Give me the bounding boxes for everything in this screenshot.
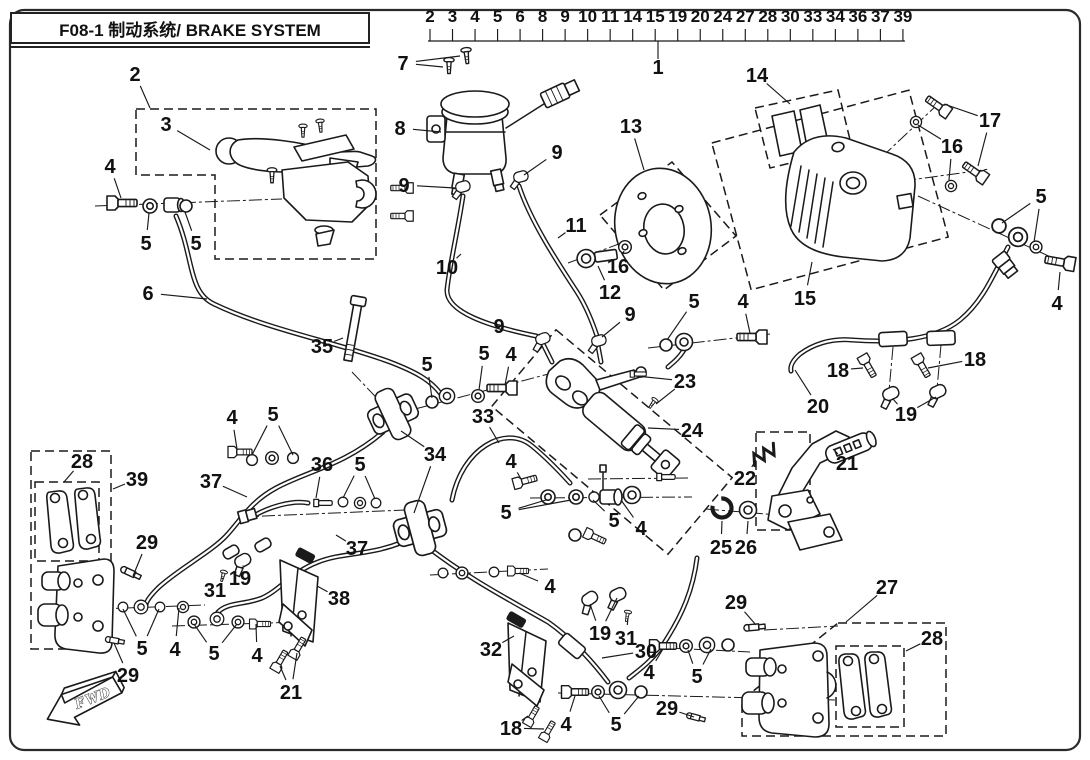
callout-5: 5 <box>354 454 365 476</box>
callout-33: 33 <box>472 406 494 428</box>
callout-23: 23 <box>674 371 696 393</box>
pivot-washer <box>740 502 757 519</box>
index-number: 2 <box>425 7 434 26</box>
callout-19: 19 <box>589 623 611 645</box>
callout-28: 28 <box>921 628 943 650</box>
brake-disc-assembly <box>576 161 720 292</box>
callout-leader <box>590 604 596 621</box>
hose-brackets <box>218 508 706 743</box>
callout-5: 5 <box>140 233 151 255</box>
callout-4: 4 <box>104 156 116 178</box>
callout-leader <box>223 486 247 497</box>
callout-31: 31 <box>204 580 226 602</box>
callout-leader <box>401 431 424 447</box>
callout-leader <box>316 477 320 498</box>
callout-16: 16 <box>941 136 963 158</box>
callout-leader <box>416 64 443 67</box>
callout-leader <box>949 159 951 180</box>
page-title: F08-1 制动系统/ BRAKE SYSTEM <box>59 16 321 41</box>
left-caliper-assembly <box>38 488 142 653</box>
diagram-canvas: FWD 234568910111415192024272830333436373… <box>0 0 1090 760</box>
callout-9: 9 <box>551 142 562 164</box>
callout-5: 5 <box>421 354 432 376</box>
callout-34: 34 <box>424 444 447 466</box>
callout-leader <box>906 644 920 651</box>
callout-leader <box>185 212 192 231</box>
callout-leader <box>140 86 150 108</box>
callout-24: 24 <box>681 420 704 442</box>
callout-leader <box>279 426 293 455</box>
title-underline <box>10 46 370 48</box>
callout-11: 11 <box>565 215 586 237</box>
callout-leader <box>1034 209 1039 242</box>
callout-25: 25 <box>710 537 732 559</box>
index-number: 14 <box>623 7 642 26</box>
callout-22: 22 <box>734 468 756 490</box>
callout-leader <box>114 643 123 663</box>
callout-leader <box>524 728 544 729</box>
callout-leader <box>599 696 609 713</box>
callout-leader <box>624 696 639 714</box>
callout-leader <box>851 368 863 369</box>
callout-5: 5 <box>608 510 619 532</box>
callout-leader <box>636 376 672 380</box>
callout-5: 5 <box>208 643 219 665</box>
callout-6: 6 <box>142 283 153 305</box>
callout-17: 17 <box>979 110 1001 132</box>
callout-8: 8 <box>394 118 405 140</box>
callout-16: 16 <box>607 256 629 278</box>
callout-36: 36 <box>311 454 333 476</box>
callout-5: 5 <box>136 638 147 660</box>
callout-35: 35 <box>311 336 333 358</box>
callout-21: 21 <box>280 682 302 704</box>
callout-28: 28 <box>71 451 93 473</box>
callout-29: 29 <box>725 592 747 614</box>
callout-37: 37 <box>200 471 222 493</box>
callout-leader <box>1058 272 1060 290</box>
callout-4: 4 <box>1051 293 1063 315</box>
callout-19: 19 <box>895 404 917 426</box>
hose-core <box>668 350 684 367</box>
front-caliper-hose-upper <box>146 432 383 605</box>
callout-leader <box>570 696 575 712</box>
callout-leader <box>978 133 987 166</box>
callout-leader <box>123 609 136 636</box>
callout-leader <box>252 426 267 455</box>
index-number: 37 <box>871 7 890 26</box>
callout-12: 12 <box>599 282 621 304</box>
callout-37: 37 <box>346 538 368 560</box>
callout-leader <box>746 314 750 333</box>
index-number: 30 <box>781 7 800 26</box>
callout-leader <box>524 159 546 175</box>
callout-5: 5 <box>691 666 702 688</box>
callout-leader <box>365 476 375 499</box>
index-number: 8 <box>538 7 547 26</box>
callout-leader <box>222 624 237 643</box>
callout-9: 9 <box>624 304 635 326</box>
callout-27: 27 <box>876 577 898 599</box>
callout-leader <box>795 370 811 395</box>
callout-leader <box>656 389 675 404</box>
callout-leader <box>256 624 257 642</box>
callout-18: 18 <box>500 718 522 740</box>
callout-leader <box>176 608 179 636</box>
index-number: 4 <box>470 7 480 26</box>
callout-leader <box>417 186 455 188</box>
callout-leader <box>688 650 693 664</box>
callout-14: 14 <box>746 65 769 87</box>
callout-leader <box>317 586 328 592</box>
callout-2: 2 <box>129 64 140 86</box>
callout-leader <box>721 521 722 534</box>
hose-core <box>447 196 536 336</box>
index-number: 27 <box>736 7 755 26</box>
callout-leader <box>133 554 142 576</box>
index-number: 15 <box>646 7 665 26</box>
callout-9: 9 <box>493 316 504 338</box>
callout-leader <box>846 595 877 622</box>
index-number: 33 <box>803 7 822 26</box>
callout-5: 5 <box>190 233 201 255</box>
callout-leader <box>602 653 633 658</box>
callout-leader <box>648 428 679 429</box>
return-spring <box>749 443 778 465</box>
callout-18: 18 <box>827 360 849 382</box>
callout-9: 9 <box>398 175 409 197</box>
callout-leader <box>147 609 159 636</box>
callout-4: 4 <box>226 407 238 429</box>
callout-38: 38 <box>328 588 350 610</box>
callout-19: 19 <box>229 568 251 590</box>
callout-15: 15 <box>794 288 816 310</box>
callout-5: 5 <box>500 502 511 524</box>
callout-30: 30 <box>635 641 657 663</box>
callout-39: 39 <box>126 469 148 491</box>
front-caliper-assembly <box>772 93 990 261</box>
callout-32: 32 <box>480 639 502 661</box>
callout-31: 31 <box>615 628 637 650</box>
callout-leader <box>558 233 565 238</box>
callout-29: 29 <box>136 532 158 554</box>
callout-13: 13 <box>620 116 642 138</box>
junction-blocks <box>340 295 451 561</box>
index-number: 5 <box>493 7 502 26</box>
callout-26: 26 <box>735 537 757 559</box>
rear-caliper-assembly <box>742 623 891 737</box>
hose-core <box>543 344 552 362</box>
callout-leader <box>1002 203 1030 223</box>
callout-leader <box>280 666 286 680</box>
callout-leader <box>336 535 346 541</box>
callout-4: 4 <box>635 518 647 540</box>
callout-leader <box>747 521 748 534</box>
callout-5: 5 <box>478 343 489 365</box>
callout-leader <box>147 213 149 230</box>
callout-29: 29 <box>656 698 678 720</box>
callout-leader <box>767 84 790 104</box>
callout-leader <box>928 361 962 368</box>
callout-leader <box>343 476 354 498</box>
callout-21: 21 <box>836 453 858 475</box>
index-number: 36 <box>848 7 867 26</box>
index-number: 34 <box>826 7 845 26</box>
index-strip: 23456891011141519202427283033343637391 <box>425 7 912 79</box>
callout-5: 5 <box>610 714 621 736</box>
callout-7: 7 <box>397 53 408 75</box>
index-pointer-label: 1 <box>652 57 663 79</box>
callout-4: 4 <box>169 639 181 661</box>
callout-5: 5 <box>267 404 278 426</box>
callout-4: 4 <box>505 451 517 473</box>
index-number: 39 <box>893 7 912 26</box>
index-number: 19 <box>668 7 687 26</box>
callout-18: 18 <box>964 349 986 371</box>
callout-4: 4 <box>643 662 655 684</box>
index-number: 20 <box>691 7 710 26</box>
callout-4: 4 <box>505 344 517 366</box>
index-number: 6 <box>515 7 524 26</box>
callout-leader <box>113 484 125 489</box>
callout-leader <box>627 618 628 625</box>
callout-5: 5 <box>1035 186 1046 208</box>
callout-10: 10 <box>436 257 458 279</box>
callout-4: 4 <box>737 291 749 313</box>
index-number: 9 <box>560 7 569 26</box>
callout-leader <box>519 573 538 581</box>
callout-4: 4 <box>560 714 572 736</box>
callout-leader <box>334 338 343 341</box>
callout-29: 29 <box>117 665 139 687</box>
callout-20: 20 <box>807 396 829 418</box>
callout-leader <box>598 266 605 280</box>
index-number: 3 <box>448 7 457 26</box>
title-block: F08-1 制动系统/ BRAKE SYSTEM <box>10 12 370 44</box>
callout-leader <box>194 624 207 642</box>
index-number: 11 <box>601 7 619 26</box>
callout-4: 4 <box>251 645 263 667</box>
parts-diagram-page: F08-1 制动系统/ BRAKE SYSTEM <box>0 0 1090 760</box>
callout-4: 4 <box>544 576 556 598</box>
callout-leader <box>222 578 223 579</box>
index-number: 24 <box>713 7 732 26</box>
callout-leader <box>635 138 644 170</box>
circlip <box>709 495 736 522</box>
callout-leader <box>114 178 121 198</box>
index-number: 28 <box>758 7 777 26</box>
callout-3: 3 <box>160 114 171 136</box>
callout-leader <box>479 366 482 390</box>
callout-leader <box>177 131 210 150</box>
callout-leader <box>602 322 620 337</box>
index-number: 10 <box>578 7 597 26</box>
callout-5: 5 <box>688 291 699 313</box>
